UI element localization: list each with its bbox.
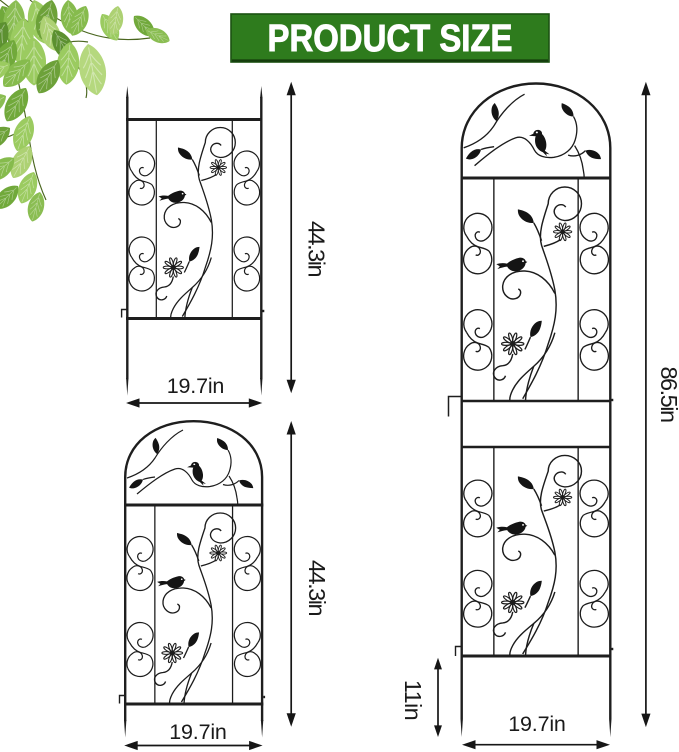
svg-text:86.5in: 86.5in [656,366,679,421]
svg-text:19.7in: 19.7in [169,720,226,744]
svg-text:19.7in: 19.7in [508,712,565,736]
svg-text:44.3in: 44.3in [304,221,330,276]
svg-text:19.7in: 19.7in [167,374,224,398]
svg-text:11in: 11in [400,680,426,720]
svg-text:44.3in: 44.3in [304,560,330,615]
svg-text:PRODUCT SIZE: PRODUCT SIZE [268,18,513,60]
